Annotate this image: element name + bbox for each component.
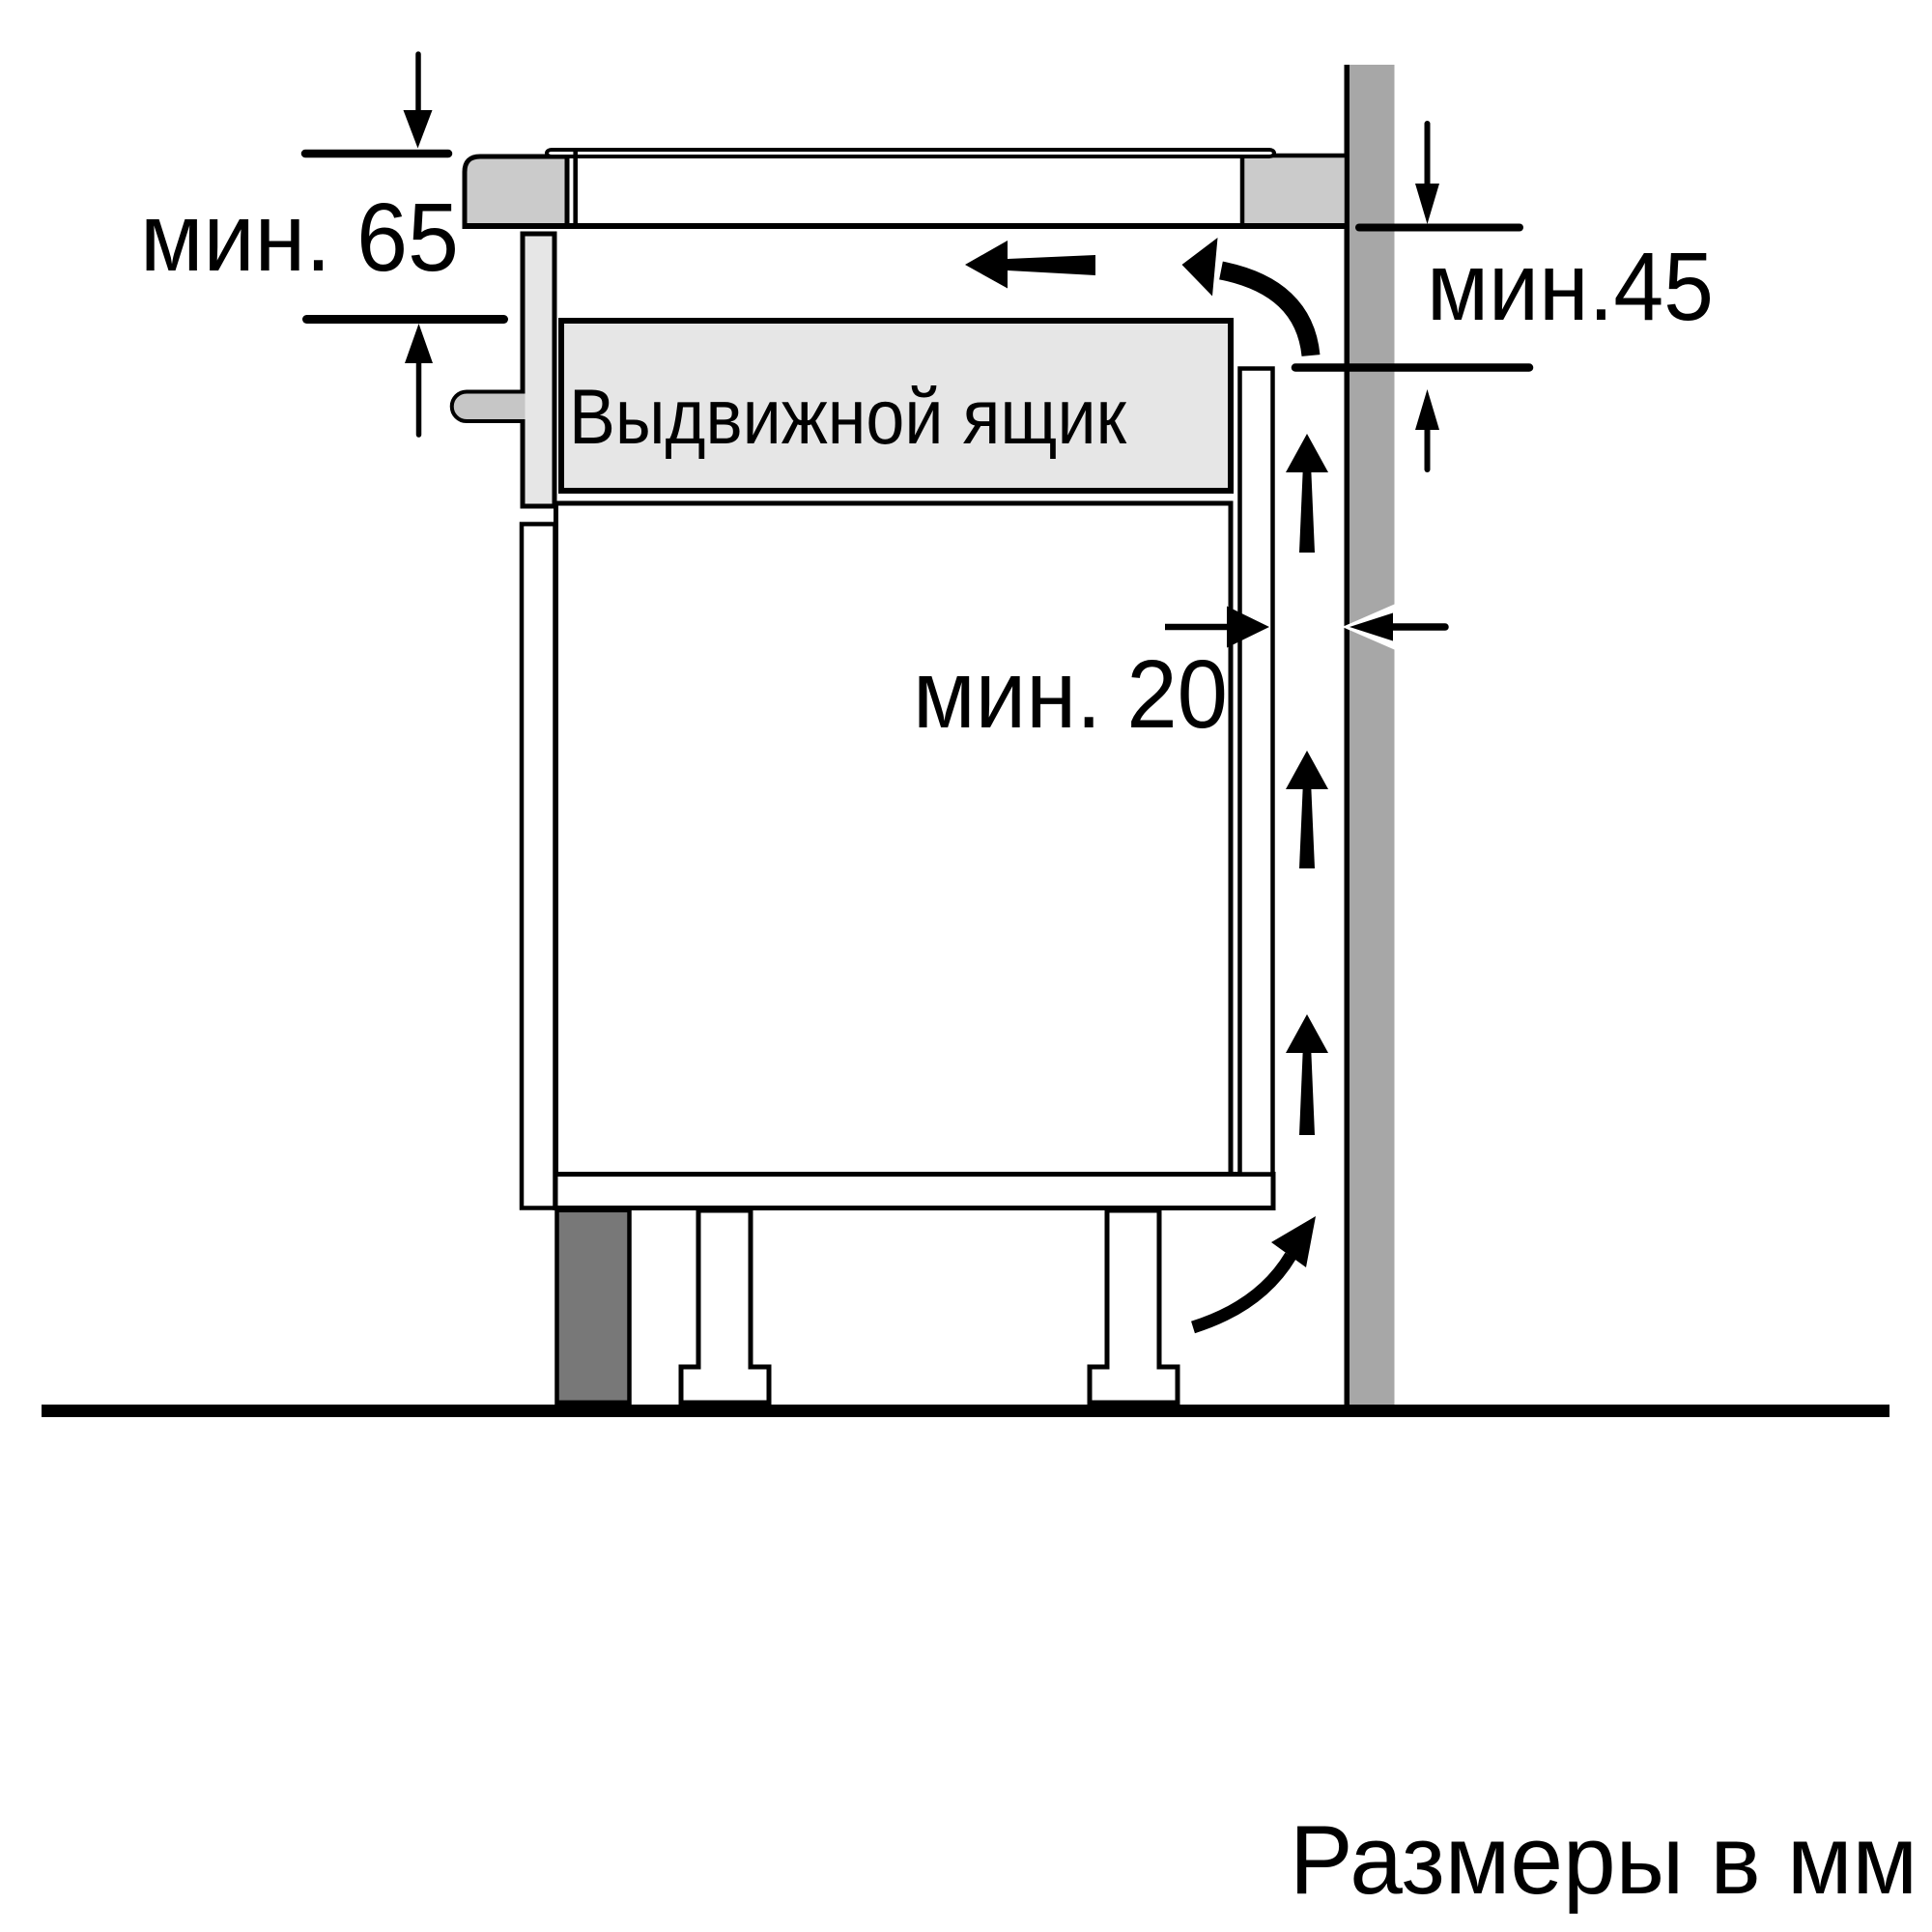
- svg-text:мин. 20: мин. 20: [913, 640, 1228, 749]
- svg-text:Размеры в мм: Размеры в мм: [1290, 1806, 1918, 1915]
- svg-text:мин. 65: мин. 65: [140, 184, 459, 292]
- svg-text:Выдвижной ящик: Выдвижной ящик: [569, 374, 1126, 461]
- svg-text:мин.45: мин.45: [1427, 233, 1714, 341]
